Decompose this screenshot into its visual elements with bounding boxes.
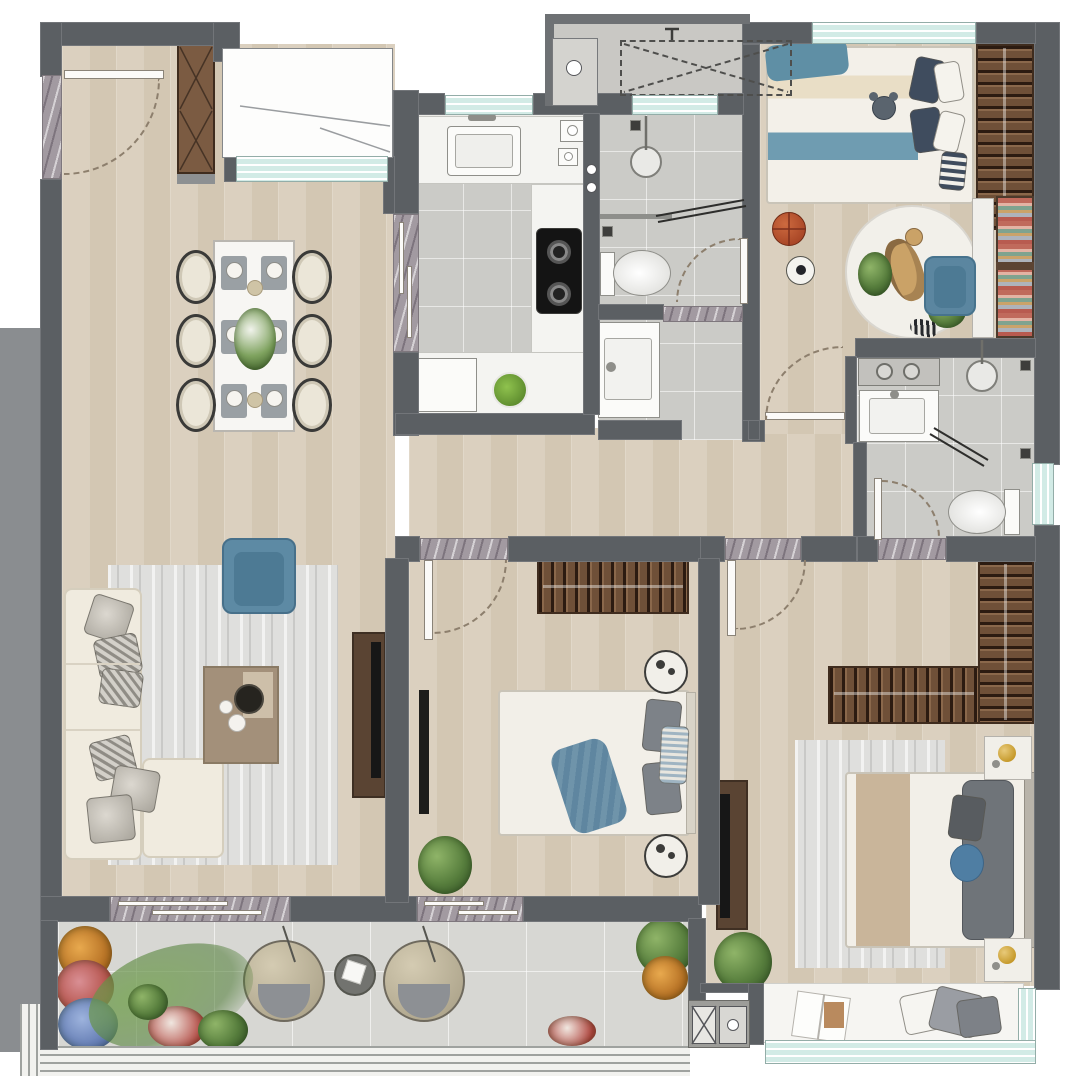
basketball: [772, 212, 806, 246]
wall: [598, 420, 682, 440]
coffee-table-cup: [219, 700, 233, 714]
wall: [718, 93, 744, 115]
floor-drain: [1020, 360, 1031, 371]
teddy-ear: [889, 92, 898, 101]
wall-balcony-left: [40, 920, 58, 1050]
wall-kids-bottom: [855, 338, 1036, 358]
wall: [598, 304, 664, 320]
toilet-bowl: [613, 250, 671, 296]
kids-pillow-striped: [938, 151, 968, 192]
bay-window-right: [1018, 988, 1036, 1044]
wall: [508, 536, 702, 562]
balcony-flower-orange-right: [642, 956, 688, 1000]
wall: [853, 442, 867, 538]
wall-right-top: [1034, 22, 1060, 465]
nightstand-gold-decor: [998, 744, 1016, 762]
floor-drain: [630, 120, 641, 131]
ac-outdoor-unit: [620, 40, 792, 96]
table-flower-deco: [247, 280, 263, 296]
laundry-hob-circle: [876, 363, 893, 380]
dining-chair: [176, 250, 216, 304]
neighbour-wall-strip: [0, 328, 42, 1052]
wall: [976, 22, 1036, 44]
dining-chair: [292, 378, 332, 432]
bathroom-door-leaf: [740, 238, 748, 304]
wall-living-bedroom2: [385, 558, 409, 903]
shaft-pipe: [566, 60, 582, 76]
wall: [946, 536, 1036, 562]
wall: [748, 420, 760, 440]
rug-palm-left: [858, 252, 892, 296]
wall: [40, 22, 216, 46]
wall-pipe: [586, 164, 597, 175]
entry-threshold: [42, 75, 62, 179]
counter-hob-circle: [564, 152, 573, 161]
bedroom2-nightstand: [644, 834, 688, 878]
floor-drain: [602, 226, 613, 237]
kids-window: [812, 22, 976, 44]
coffee-table-cup: [228, 714, 246, 732]
teddy-ear: [869, 92, 878, 101]
master-bath-door-leaf: [874, 478, 882, 540]
soccer-ball-patch: [796, 265, 806, 275]
master-bath-window: [1032, 463, 1054, 525]
dining-chair: [292, 314, 332, 368]
master-wardrobe-horizontal: [828, 666, 980, 724]
living-slider-threshold: [110, 896, 290, 922]
balcony-railing: [40, 1046, 690, 1076]
wall-right-bottom: [1034, 525, 1060, 990]
tv-living: [371, 642, 381, 778]
kids-bookshelf-divider: [996, 262, 1034, 270]
cooktop-burner: [547, 240, 571, 264]
balcony-plant-small: [128, 984, 168, 1020]
counter-hob-circle: [567, 125, 578, 136]
nightstand-decor: [992, 760, 1000, 768]
vanity-faucet: [606, 362, 616, 372]
plate: [266, 262, 283, 279]
wall: [40, 896, 110, 922]
kitchen-slider-threshold: [393, 214, 419, 352]
nightstand-decor: [656, 660, 665, 669]
balcony-flower-right-small: [548, 1016, 596, 1046]
shower-head: [630, 146, 662, 178]
table-flower-deco: [247, 392, 263, 408]
nightstand-decor: [656, 844, 665, 853]
bedroom2-nightstand: [644, 650, 688, 694]
living-slider-bar: [118, 901, 228, 906]
entry-shoe-cabinet: [177, 44, 215, 174]
plate: [226, 262, 243, 279]
balcony-railing-left: [20, 1004, 40, 1076]
wall-kitchen-bottom: [395, 413, 595, 435]
vegetable-plate: [492, 372, 528, 408]
bathroom-window: [632, 95, 718, 115]
nightstand-decor: [992, 962, 1000, 970]
master-wardrobe-rail: [834, 692, 974, 695]
living-slider-bar: [152, 910, 262, 915]
sofa-pillow: [98, 667, 145, 708]
duct-x-box: [692, 1006, 716, 1044]
wall: [40, 22, 62, 77]
blue-armchair-seat: [234, 552, 284, 606]
wall-kitchen-bath: [583, 113, 600, 415]
bedroom2-slider-bar: [424, 901, 484, 906]
dining-centerpiece: [234, 308, 276, 370]
bedroom2-plant: [418, 836, 472, 894]
master-toilet-bowl: [948, 490, 1006, 534]
platform-wall-top: [545, 14, 750, 24]
bedroom2-slider-threshold: [417, 896, 523, 922]
kitchen-slider-bar: [407, 266, 412, 338]
kids-chair-seat: [934, 266, 966, 308]
master-blue-cushion: [950, 844, 984, 882]
duct-pipe: [727, 1019, 739, 1031]
sofa-pillow: [86, 794, 137, 845]
nightstand-decor: [668, 668, 675, 675]
nightstand-decor: [668, 852, 675, 859]
wall: [40, 179, 62, 898]
cooktop-burner: [547, 282, 571, 306]
dining-chair: [176, 378, 216, 432]
coffee-table-tray: [234, 684, 264, 714]
kitchen-window: [445, 95, 533, 115]
wall-bedroom2-master: [698, 558, 720, 905]
floor-hallway: [409, 428, 857, 540]
giraffe-head: [905, 228, 923, 246]
entry-cabinet-base: [177, 174, 215, 184]
entry-door-leaf: [64, 70, 164, 79]
bay-window-outline: [222, 48, 393, 158]
floor-drain: [1020, 448, 1031, 459]
floor-kitchen-tile: [415, 183, 535, 355]
dining-chair: [292, 250, 332, 304]
master-vanity-faucet: [890, 390, 899, 399]
bedroom2-tv: [419, 690, 429, 814]
master-wardrobe-rail: [1004, 564, 1007, 720]
bedroom2-pillow-striped: [659, 725, 690, 784]
kitchen-slider-bar: [399, 222, 404, 294]
plate: [226, 390, 243, 407]
laundry-counter: [858, 358, 940, 386]
bedroom2-door-threshold: [420, 538, 508, 560]
shower-divider: [598, 214, 672, 219]
master-door-leaf: [727, 560, 736, 636]
dining-window: [236, 156, 388, 182]
laundry-hob-circle: [903, 363, 920, 380]
master-tv: [720, 794, 730, 918]
wall-pipe: [586, 182, 597, 193]
refrigerator: [415, 358, 477, 412]
master-door-threshold: [725, 538, 801, 560]
bay-window-bottom: [765, 1040, 1036, 1064]
bedroom2-slider-bar: [458, 910, 518, 915]
wall: [845, 356, 857, 444]
dining-chair: [176, 314, 216, 368]
wall: [748, 983, 764, 1045]
plate: [266, 390, 283, 407]
balcony-plant-green: [198, 1010, 248, 1050]
nightstand-gold-decor: [998, 946, 1016, 964]
bathroom-threshold: [663, 306, 743, 322]
wall: [801, 536, 857, 562]
bedroom2-wardrobe-rail: [543, 585, 683, 588]
wall: [523, 896, 702, 922]
wall-kitchen-left: [393, 90, 419, 214]
master-shower-head: [966, 360, 998, 392]
kitchen-sink-basin: [455, 134, 513, 168]
kitchen-faucet: [468, 114, 496, 121]
master-bed-runner: [856, 774, 910, 946]
floor-plan: [0, 0, 1080, 1084]
bedroom2-door-leaf: [424, 560, 433, 640]
wall-kids-left: [742, 44, 760, 422]
bay-book-photo: [824, 1002, 844, 1028]
master-pillow-dark: [947, 794, 987, 842]
bay-pillow-darkgray: [956, 995, 1003, 1038]
master-bath-threshold: [878, 538, 946, 560]
master-vanity-basin: [869, 398, 925, 434]
master-toilet-tank: [1004, 489, 1020, 535]
